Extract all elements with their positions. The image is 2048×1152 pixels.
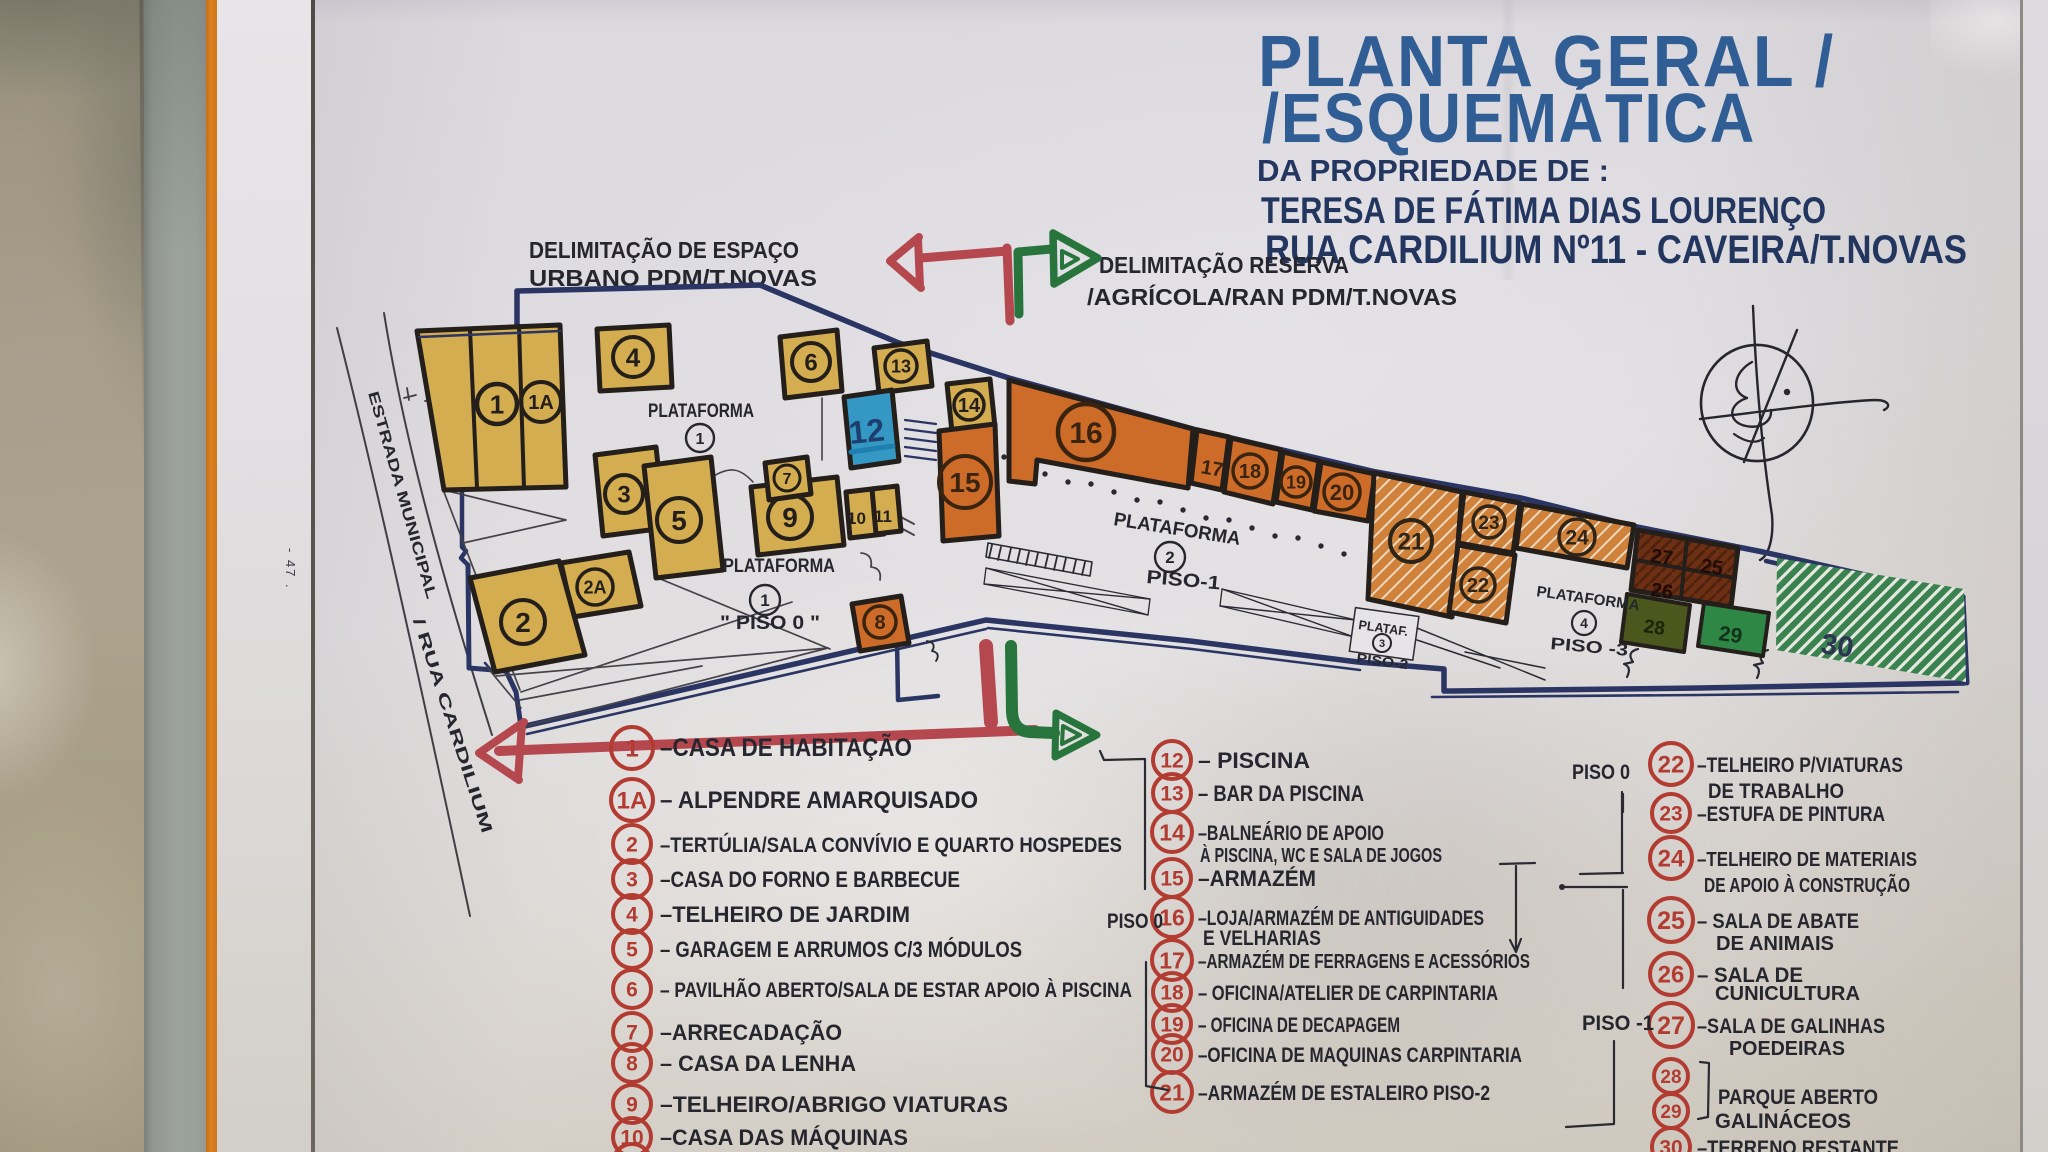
svg-text:/ RUA CARDILIUM: / RUA CARDILIUM — [409, 616, 495, 835]
svg-text:28: 28 — [1660, 1067, 1681, 1088]
svg-text:– ALPENDRE AMARQUISADO: – ALPENDRE AMARQUISADO — [660, 787, 978, 814]
svg-text:29: 29 — [1717, 622, 1743, 648]
svg-text:8: 8 — [626, 1053, 638, 1076]
svg-text:GALINÁCEOS: GALINÁCEOS — [1715, 1110, 1851, 1133]
svg-text:POEDEIRAS: POEDEIRAS — [1729, 1038, 1845, 1060]
svg-text:– PISCINA: – PISCINA — [1198, 748, 1310, 773]
svg-text:DE ANIMAIS: DE ANIMAIS — [1716, 933, 1834, 955]
svg-text:– OFICINA/ATELIER DE CARPINTAR: – OFICINA/ATELIER DE CARPINTARIA — [1198, 982, 1498, 1005]
svg-text:2: 2 — [515, 607, 531, 638]
svg-text:28: 28 — [1642, 616, 1666, 640]
svg-text:–OFICINA DE MAQUINAS CARPINTAR: –OFICINA DE MAQUINAS CARPINTARIA — [1198, 1044, 1522, 1067]
svg-text:/ESQUEMÁTICA: /ESQUEMÁTICA — [1262, 79, 1756, 157]
svg-text:1: 1 — [490, 389, 504, 419]
svg-text:–ARRECADAÇÃO: –ARRECADAÇÃO — [660, 1020, 842, 1045]
svg-text:3: 3 — [626, 869, 638, 892]
svg-text:- 47 .: - 47 . — [283, 548, 298, 590]
svg-text:4: 4 — [626, 904, 638, 927]
svg-text:–TELHEIRO DE JARDIM: –TELHEIRO DE JARDIM — [660, 902, 910, 927]
svg-text:/AGRÍCOLA/RAN PDM/T.NOVAS: /AGRÍCOLA/RAN PDM/T.NOVAS — [1087, 283, 1457, 310]
svg-text:– PAVILHÃO ABERTO/SALA DE ESTA: – PAVILHÃO ABERTO/SALA DE ESTAR APOIO À … — [660, 979, 1132, 1002]
svg-text:– OFICINA DE DECAPAGEM: – OFICINA DE DECAPAGEM — [1198, 1014, 1400, 1037]
svg-text:5: 5 — [671, 505, 687, 536]
svg-text:DELIMITAÇÃO RESERVA: DELIMITAÇÃO RESERVA — [1099, 251, 1349, 278]
svg-text:27: 27 — [1657, 1012, 1685, 1040]
svg-text:15: 15 — [949, 467, 980, 498]
svg-text:–ARMAZÉM DE FERRAGENS E ACESSÓ: –ARMAZÉM DE FERRAGENS E ACESSÓRIOS — [1198, 949, 1530, 973]
svg-text:12: 12 — [847, 411, 886, 451]
svg-text:PLATAFORMA: PLATAFORMA — [648, 401, 754, 422]
svg-text:–TERTÚLIA/SALA CONVÍVIO E QUAR: –TERTÚLIA/SALA CONVÍVIO E QUARTO HOSPEDE… — [660, 833, 1122, 857]
svg-text:1: 1 — [625, 736, 638, 763]
svg-text:À PISCINA, WC E SALA DE JOGOS: À PISCINA, WC E SALA DE JOGOS — [1200, 844, 1442, 867]
svg-text:26: 26 — [1658, 962, 1685, 989]
svg-text:PISO 0: PISO 0 — [1572, 761, 1630, 784]
svg-text:–SALA DE GALINHAS: –SALA DE GALINHAS — [1697, 1015, 1885, 1038]
svg-text:25: 25 — [1699, 555, 1724, 580]
svg-text:10: 10 — [847, 509, 866, 528]
svg-text:17: 17 — [1159, 947, 1185, 973]
svg-text:5: 5 — [626, 939, 638, 962]
svg-text:4: 4 — [626, 342, 641, 372]
svg-text:22: 22 — [1467, 575, 1489, 597]
svg-text:1A: 1A — [617, 788, 648, 815]
svg-text:3: 3 — [617, 482, 630, 509]
svg-text:13: 13 — [1160, 783, 1183, 806]
svg-text:24: 24 — [1658, 846, 1685, 873]
svg-text:6: 6 — [804, 350, 817, 377]
svg-text:" PISO 0 ": " PISO 0 " — [720, 613, 820, 634]
svg-text:–BALNEÁRIO DE APOIO: –BALNEÁRIO DE APOIO — [1198, 822, 1384, 845]
svg-text:20: 20 — [1160, 1044, 1183, 1067]
svg-text:9: 9 — [782, 502, 798, 533]
svg-text:2: 2 — [626, 834, 638, 857]
svg-text:8: 8 — [874, 612, 885, 634]
svg-text:7: 7 — [783, 471, 792, 488]
svg-text:23: 23 — [1478, 513, 1499, 534]
svg-text:25: 25 — [1657, 907, 1685, 935]
svg-text:16: 16 — [1069, 417, 1102, 450]
svg-text:2: 2 — [1165, 548, 1174, 567]
svg-text:1: 1 — [760, 591, 769, 610]
svg-text:–TERRENO RESTANTE: –TERRENO RESTANTE — [1697, 1137, 1899, 1152]
svg-text:–TELHEIRO P/VIATURAS: –TELHEIRO P/VIATURAS — [1697, 754, 1903, 777]
svg-text:– CASA DA LENHA: – CASA DA LENHA — [660, 1051, 856, 1076]
svg-text:–TELHEIRO/ABRIGO VIATURAS: –TELHEIRO/ABRIGO VIATURAS — [660, 1092, 1008, 1117]
svg-text:TERESA DE FÁTIMA DIAS LOURENÇO: TERESA DE FÁTIMA DIAS LOURENÇO — [1261, 190, 1826, 231]
svg-text:– SALA DE ABATE: – SALA DE ABATE — [1697, 910, 1859, 933]
svg-text:9: 9 — [626, 1094, 638, 1117]
svg-text:23: 23 — [1659, 803, 1682, 826]
svg-text:21: 21 — [1398, 529, 1425, 556]
svg-text:11: 11 — [874, 507, 892, 526]
svg-text:30: 30 — [1819, 628, 1855, 664]
svg-text:2A: 2A — [583, 577, 606, 597]
svg-text:ESTRADA MUNICIPAL: ESTRADA MUNICIPAL — [364, 389, 440, 600]
svg-text:17: 17 — [1199, 456, 1225, 482]
svg-text:PISO -1: PISO -1 — [1582, 1012, 1654, 1035]
svg-text:7: 7 — [626, 1022, 638, 1045]
svg-text:–ARMAZÉM: –ARMAZÉM — [1198, 866, 1316, 891]
svg-text:PISO 0: PISO 0 — [1107, 910, 1163, 933]
svg-text:RUA CARDILIUM Nº11 - CAVEIRA/T: RUA CARDILIUM Nº11 - CAVEIRA/T.NOVAS — [1265, 228, 1967, 272]
svg-text:21: 21 — [1159, 1079, 1185, 1105]
svg-text:– GARAGEM E ARRUMOS C/3 MÓDULO: – GARAGEM E ARRUMOS C/3 MÓDULOS — [660, 937, 1022, 962]
svg-text:4: 4 — [1580, 615, 1588, 631]
svg-text:14: 14 — [958, 395, 981, 417]
svg-text:DELIMITAÇÃO DE ESPAÇO: DELIMITAÇÃO DE ESPAÇO — [529, 236, 799, 263]
svg-text:–CASA DE HABITAÇÃO: –CASA DE HABITAÇÃO — [660, 732, 912, 762]
svg-text:– BAR DA PISCINA: – BAR DA PISCINA — [1198, 781, 1364, 806]
svg-text:18: 18 — [1239, 461, 1261, 483]
svg-text:E VELHARIAS: E VELHARIAS — [1203, 927, 1321, 950]
svg-text:PARQUE ABERTO: PARQUE ABERTO — [1718, 1086, 1878, 1109]
svg-text:PLATAFORMA: PLATAFORMA — [1535, 583, 1641, 614]
svg-text:PISO-1: PISO-1 — [1146, 567, 1222, 594]
svg-text:15: 15 — [1160, 868, 1184, 891]
svg-text:18: 18 — [1160, 982, 1184, 1005]
svg-text:PISO -3: PISO -3 — [1550, 634, 1629, 660]
svg-text:–ESTUFA DE PINTURA: –ESTUFA DE PINTURA — [1697, 803, 1885, 826]
svg-text:12: 12 — [1160, 750, 1183, 773]
svg-text:DE APOIO À CONSTRUÇÃO: DE APOIO À CONSTRUÇÃO — [1704, 874, 1910, 897]
svg-text:27: 27 — [1649, 545, 1674, 570]
svg-text:1: 1 — [696, 431, 705, 448]
svg-text:29: 29 — [1660, 1102, 1681, 1123]
svg-text:6: 6 — [626, 979, 638, 1002]
svg-text:PLATAFORMA: PLATAFORMA — [723, 556, 835, 577]
svg-text:30: 30 — [1659, 1137, 1682, 1152]
svg-text:20: 20 — [1330, 480, 1354, 505]
svg-text:CUNICULTURA: CUNICULTURA — [1715, 983, 1860, 1005]
svg-text:DE TRABALHO: DE TRABALHO — [1708, 780, 1844, 803]
svg-text:22: 22 — [1658, 752, 1685, 779]
svg-text:–CASA DAS MÁQUINAS: –CASA DAS MÁQUINAS — [660, 1125, 908, 1150]
svg-text:24: 24 — [1565, 527, 1589, 550]
svg-text:13: 13 — [891, 356, 911, 376]
svg-text:–TELHEIRO DE MATERIAIS: –TELHEIRO DE MATERIAIS — [1697, 849, 1917, 871]
svg-text:14: 14 — [1159, 819, 1185, 845]
svg-text:–CASA DO FORNO E BARBECUE: –CASA DO FORNO E BARBECUE — [660, 867, 960, 892]
svg-text:3: 3 — [1379, 638, 1385, 650]
svg-text:1A: 1A — [528, 392, 554, 414]
svg-text:16: 16 — [1159, 904, 1185, 930]
svg-text:DA PROPRIEDADE DE :: DA PROPRIEDADE DE : — [1257, 153, 1609, 188]
svg-text:–ARMAZÉM DE ESTALEIRO PISO-2: –ARMAZÉM DE ESTALEIRO PISO-2 — [1198, 1082, 1490, 1105]
svg-text:19: 19 — [1286, 472, 1306, 492]
